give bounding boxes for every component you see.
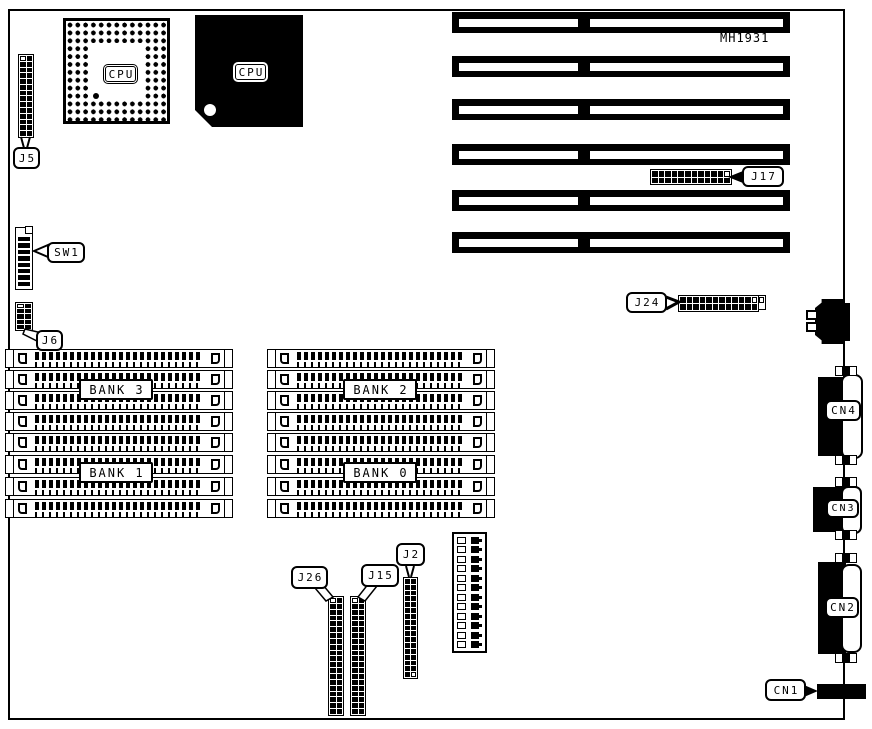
pin bbox=[330, 703, 336, 708]
simm-slot bbox=[267, 499, 495, 518]
pin bbox=[20, 73, 26, 78]
pin bbox=[337, 680, 343, 685]
pin bbox=[411, 602, 416, 607]
pin bbox=[352, 709, 358, 714]
pin bbox=[706, 297, 712, 303]
pin bbox=[693, 297, 699, 303]
isa-slot-6 bbox=[452, 232, 790, 253]
label-j5: J5 bbox=[13, 147, 40, 169]
label-cn4: CN4 bbox=[825, 400, 861, 421]
pin bbox=[337, 709, 343, 714]
pin bbox=[405, 661, 410, 666]
slot-window bbox=[590, 239, 783, 247]
pin bbox=[411, 620, 416, 625]
pin bbox=[330, 662, 336, 667]
pin bbox=[17, 309, 24, 313]
pin bbox=[20, 62, 26, 67]
power-pin-row bbox=[457, 594, 482, 601]
pin bbox=[359, 645, 365, 650]
j2-header bbox=[403, 577, 418, 679]
sw1-dip-switch bbox=[15, 227, 33, 290]
pin bbox=[352, 668, 358, 673]
pin bbox=[27, 85, 33, 90]
pin bbox=[337, 656, 343, 661]
power-pin-row bbox=[457, 603, 482, 610]
slot-window bbox=[459, 106, 578, 114]
pin bbox=[405, 643, 410, 648]
bank1-label: BANK 1 bbox=[79, 462, 153, 483]
power-pin-row bbox=[457, 556, 482, 563]
pin bbox=[337, 668, 343, 673]
simm-slot bbox=[267, 433, 495, 452]
pin bbox=[27, 68, 33, 73]
pin bbox=[692, 171, 698, 177]
pin bbox=[25, 304, 32, 308]
cn2-screw-post bbox=[835, 653, 857, 663]
pin bbox=[337, 645, 343, 650]
pin bbox=[337, 633, 343, 638]
cn4-screw-post bbox=[835, 455, 857, 465]
pin bbox=[27, 114, 33, 119]
pin bbox=[25, 309, 32, 313]
cn2-screw-post bbox=[835, 553, 857, 563]
pin bbox=[719, 304, 725, 310]
pin bbox=[352, 686, 358, 691]
pin bbox=[17, 320, 24, 324]
pin bbox=[330, 598, 336, 603]
label-j17: J17 bbox=[742, 166, 784, 187]
pin bbox=[337, 621, 343, 626]
slot-window bbox=[590, 197, 783, 205]
cn1-connector bbox=[817, 684, 866, 699]
pin bbox=[25, 325, 32, 329]
j5-header bbox=[18, 54, 34, 138]
simm-slot bbox=[5, 349, 233, 368]
pin bbox=[732, 304, 738, 310]
pin bbox=[337, 686, 343, 691]
pin bbox=[411, 655, 416, 660]
pin bbox=[27, 56, 33, 61]
power-pin-row bbox=[457, 584, 482, 591]
pin bbox=[330, 610, 336, 615]
pin bbox=[20, 114, 26, 119]
pin bbox=[718, 171, 724, 177]
pin bbox=[352, 651, 358, 656]
slot-window bbox=[590, 63, 783, 71]
j26-header bbox=[328, 596, 344, 716]
pin bbox=[359, 668, 365, 673]
pin bbox=[330, 668, 336, 673]
pin bbox=[337, 598, 343, 603]
isa-slot-2 bbox=[452, 56, 790, 77]
pin bbox=[726, 297, 732, 303]
pin bbox=[405, 672, 410, 677]
pin bbox=[337, 616, 343, 621]
pin bbox=[352, 656, 358, 661]
pin bbox=[337, 651, 343, 656]
j24-header bbox=[678, 295, 759, 312]
pin bbox=[20, 85, 26, 90]
power-pin-row bbox=[457, 622, 482, 629]
pin bbox=[20, 56, 26, 61]
pin bbox=[27, 96, 33, 101]
pin bbox=[724, 171, 730, 177]
pin bbox=[687, 304, 693, 310]
pin bbox=[337, 604, 343, 609]
pin bbox=[27, 79, 33, 84]
pin bbox=[405, 596, 410, 601]
pin bbox=[745, 304, 751, 310]
pin bbox=[405, 655, 410, 660]
pin bbox=[711, 178, 717, 184]
power-pin-row bbox=[457, 575, 482, 582]
pin bbox=[359, 686, 365, 691]
pin bbox=[678, 171, 684, 177]
pin bbox=[411, 614, 416, 619]
pin bbox=[330, 692, 336, 697]
power-pin-row bbox=[457, 546, 482, 553]
pin bbox=[359, 709, 365, 714]
pin bbox=[330, 686, 336, 691]
pin bbox=[359, 621, 365, 626]
simm-slot bbox=[5, 412, 233, 431]
pin bbox=[411, 661, 416, 666]
pin bbox=[17, 314, 24, 318]
pin bbox=[665, 171, 671, 177]
pin bbox=[352, 639, 358, 644]
pin bbox=[739, 304, 745, 310]
pin bbox=[680, 297, 686, 303]
pin bbox=[27, 73, 33, 78]
pin bbox=[672, 178, 678, 184]
pin bbox=[337, 627, 343, 632]
label-j2: J2 bbox=[396, 543, 425, 566]
pin bbox=[359, 616, 365, 621]
pin bbox=[352, 703, 358, 708]
pin bbox=[411, 585, 416, 590]
pin bbox=[359, 639, 365, 644]
pin bbox=[352, 604, 358, 609]
pin bbox=[705, 178, 711, 184]
j6-header bbox=[15, 302, 33, 331]
pin bbox=[706, 304, 712, 310]
slot-window bbox=[459, 239, 578, 247]
pin bbox=[330, 697, 336, 702]
pin bbox=[405, 666, 410, 671]
cpu-socket-label: CPU bbox=[105, 66, 136, 82]
pin bbox=[330, 633, 336, 638]
pin bbox=[692, 178, 698, 184]
pin bbox=[411, 596, 416, 601]
pin bbox=[678, 178, 684, 184]
cn3-screw-post bbox=[835, 477, 857, 487]
slot-window bbox=[459, 197, 578, 205]
pin bbox=[711, 171, 717, 177]
pin bbox=[359, 662, 365, 667]
simm-slot bbox=[267, 412, 495, 431]
pin bbox=[680, 304, 686, 310]
pin bbox=[411, 649, 416, 654]
pin bbox=[693, 304, 699, 310]
pin bbox=[745, 297, 751, 303]
pin bbox=[411, 591, 416, 596]
pin bbox=[352, 610, 358, 615]
pin bbox=[337, 674, 343, 679]
pin bbox=[330, 639, 336, 644]
pin bbox=[330, 604, 336, 609]
keyboard-din-connector bbox=[815, 299, 845, 344]
board-part-number: MH1931 bbox=[720, 31, 769, 45]
keyboard-pin bbox=[806, 310, 818, 320]
label-j15: J15 bbox=[361, 564, 399, 587]
j15-header bbox=[350, 596, 366, 716]
pin bbox=[405, 602, 410, 607]
pin bbox=[25, 314, 32, 318]
pin bbox=[20, 108, 26, 113]
pin bbox=[652, 178, 658, 184]
pin bbox=[20, 102, 26, 107]
pin bbox=[685, 171, 691, 177]
pin bbox=[27, 125, 33, 130]
pin bbox=[739, 297, 745, 303]
pin bbox=[330, 656, 336, 661]
pin bbox=[359, 674, 365, 679]
pin bbox=[359, 656, 365, 661]
pin bbox=[330, 627, 336, 632]
j17-header bbox=[650, 169, 732, 185]
pin bbox=[665, 178, 671, 184]
pin bbox=[27, 62, 33, 67]
pin bbox=[700, 297, 706, 303]
pin bbox=[411, 631, 416, 636]
cn4-screw-post bbox=[835, 366, 857, 376]
pin bbox=[17, 325, 24, 329]
pin1-dot bbox=[93, 93, 99, 99]
pin bbox=[359, 680, 365, 685]
bank0-label: BANK 0 bbox=[343, 462, 417, 483]
power-pin-row bbox=[457, 632, 482, 639]
pin bbox=[20, 91, 26, 96]
pin bbox=[337, 692, 343, 697]
pin bbox=[405, 579, 410, 584]
pin bbox=[352, 633, 358, 638]
pin bbox=[698, 178, 704, 184]
isa-slot-1 bbox=[452, 12, 790, 33]
slot-window bbox=[459, 151, 578, 159]
pin bbox=[411, 672, 416, 677]
power-pin-row bbox=[457, 613, 482, 620]
pin bbox=[352, 680, 358, 685]
pin bbox=[359, 598, 365, 603]
pin bbox=[337, 639, 343, 644]
pin bbox=[359, 633, 365, 638]
pin bbox=[352, 697, 358, 702]
pin bbox=[411, 666, 416, 671]
bank3-label: BANK 3 bbox=[79, 379, 153, 400]
pin bbox=[359, 627, 365, 632]
pin bbox=[698, 171, 704, 177]
pin bbox=[752, 297, 758, 303]
label-cn2: CN2 bbox=[825, 597, 859, 618]
pin bbox=[352, 645, 358, 650]
label-j26: J26 bbox=[291, 566, 328, 589]
isa-slot-5 bbox=[452, 190, 790, 211]
pin bbox=[352, 598, 358, 603]
pin bbox=[337, 697, 343, 702]
pin bbox=[687, 297, 693, 303]
pin bbox=[330, 621, 336, 626]
sw1-position1-marker bbox=[25, 226, 33, 234]
pin bbox=[352, 692, 358, 697]
cpu-chip: CPU bbox=[195, 15, 303, 127]
pin bbox=[405, 637, 410, 642]
pin bbox=[330, 616, 336, 621]
pin bbox=[330, 674, 336, 679]
pin bbox=[713, 304, 719, 310]
pin bbox=[672, 171, 678, 177]
simm-slot bbox=[5, 499, 233, 518]
label-cn3: CN3 bbox=[826, 499, 859, 518]
pin bbox=[405, 649, 410, 654]
pin bbox=[330, 645, 336, 650]
pin bbox=[27, 131, 33, 136]
pin bbox=[405, 626, 410, 631]
pin bbox=[20, 131, 26, 136]
keyboard-pin bbox=[806, 322, 818, 332]
pin bbox=[27, 91, 33, 96]
pin bbox=[411, 643, 416, 648]
pin bbox=[652, 171, 658, 177]
pin bbox=[719, 297, 725, 303]
cn3-screw-post bbox=[835, 530, 857, 540]
pin bbox=[405, 631, 410, 636]
pin bbox=[352, 627, 358, 632]
pin bbox=[337, 662, 343, 667]
pin bbox=[405, 620, 410, 625]
pin bbox=[337, 703, 343, 708]
isa-slot-4 bbox=[452, 144, 790, 165]
pin bbox=[724, 178, 730, 184]
pin bbox=[352, 621, 358, 626]
pin bbox=[337, 610, 343, 615]
bank2-label: BANK 2 bbox=[343, 379, 417, 400]
pin bbox=[20, 125, 26, 130]
motherboard-diagram: CPU CPU MH1931 bbox=[0, 0, 872, 729]
pin bbox=[25, 320, 32, 324]
pin bbox=[359, 610, 365, 615]
cpu-chip-label: CPU bbox=[235, 64, 266, 80]
slot-window bbox=[590, 19, 783, 27]
power-pin-row bbox=[457, 641, 482, 648]
label-cn1: CN1 bbox=[765, 679, 806, 701]
pin bbox=[405, 608, 410, 613]
pin bbox=[359, 604, 365, 609]
pin bbox=[20, 68, 26, 73]
pin bbox=[359, 651, 365, 656]
pin bbox=[27, 120, 33, 125]
isa-slot-3 bbox=[452, 99, 790, 120]
pin bbox=[411, 637, 416, 642]
pin bbox=[20, 120, 26, 125]
pin bbox=[659, 178, 665, 184]
pin bbox=[330, 680, 336, 685]
label-sw1: SW1 bbox=[47, 242, 85, 263]
power-pin-row bbox=[457, 565, 482, 572]
pin bbox=[405, 585, 410, 590]
simm-slot bbox=[5, 433, 233, 452]
pin bbox=[700, 304, 706, 310]
pin bbox=[659, 171, 665, 177]
pin bbox=[359, 697, 365, 702]
pin bbox=[27, 102, 33, 107]
pin bbox=[20, 96, 26, 101]
pin bbox=[752, 304, 758, 310]
pin bbox=[705, 171, 711, 177]
power-pin-row bbox=[457, 537, 482, 544]
pin bbox=[359, 692, 365, 697]
pin bbox=[732, 297, 738, 303]
slot-window bbox=[590, 106, 783, 114]
simm-slot bbox=[267, 349, 495, 368]
label-j6: J6 bbox=[36, 330, 63, 351]
pin bbox=[17, 304, 24, 308]
pin bbox=[411, 626, 416, 631]
pin bbox=[352, 616, 358, 621]
slot-window bbox=[459, 63, 578, 71]
pin bbox=[352, 662, 358, 667]
pin bbox=[405, 614, 410, 619]
pin1-dot bbox=[204, 104, 216, 116]
pin bbox=[330, 651, 336, 656]
pin bbox=[330, 709, 336, 714]
pga-cpu-socket: CPU bbox=[63, 18, 170, 124]
pin bbox=[359, 703, 365, 708]
pin bbox=[718, 178, 724, 184]
slot-window bbox=[590, 151, 783, 159]
keyboard-din-connector-tail bbox=[843, 303, 850, 341]
pin bbox=[726, 304, 732, 310]
pin bbox=[411, 608, 416, 613]
pin bbox=[20, 79, 26, 84]
pin bbox=[685, 178, 691, 184]
pin bbox=[352, 674, 358, 679]
pin bbox=[405, 591, 410, 596]
pin bbox=[411, 579, 416, 584]
slot-window bbox=[459, 19, 578, 27]
power-connector bbox=[452, 532, 487, 653]
pin bbox=[713, 297, 719, 303]
label-j24: J24 bbox=[626, 292, 667, 313]
pin bbox=[27, 108, 33, 113]
